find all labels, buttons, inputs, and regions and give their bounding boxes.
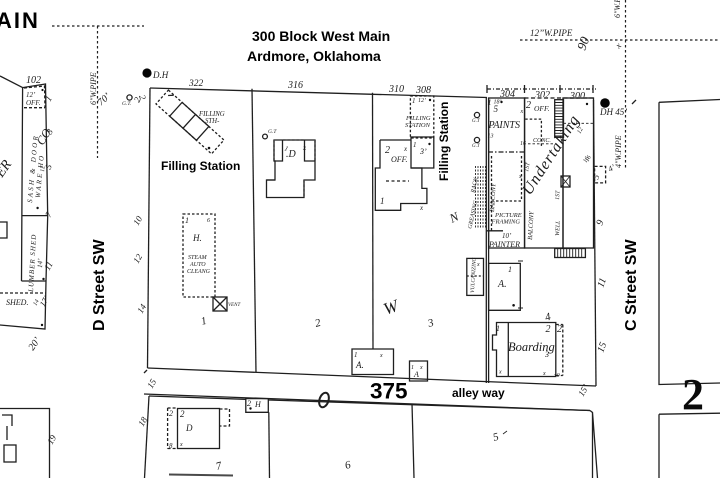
svg-text:A.: A. bbox=[355, 360, 364, 370]
svg-text:2: 2 bbox=[526, 100, 531, 111]
svg-text:1: 1 bbox=[488, 98, 492, 107]
svg-text:2: 2 bbox=[180, 409, 185, 419]
svg-text:x: x bbox=[542, 371, 546, 377]
svg-text:1: 1 bbox=[508, 265, 512, 274]
svg-text:STH-: STH- bbox=[205, 118, 220, 125]
svg-text:1: 1 bbox=[354, 351, 358, 359]
svg-text:1: 1 bbox=[380, 196, 385, 206]
svg-text:300 Block West Main: 300 Block West Main bbox=[252, 28, 390, 44]
svg-text:310: 310 bbox=[388, 84, 404, 95]
svg-text:H.: H. bbox=[192, 233, 202, 243]
svg-text:A.: A. bbox=[497, 279, 507, 290]
svg-text:STEAM: STEAM bbox=[188, 255, 208, 261]
svg-text:1: 1 bbox=[413, 141, 417, 149]
svg-text:2: 2 bbox=[682, 370, 704, 419]
svg-text:x: x bbox=[179, 442, 183, 448]
svg-text:6"W.P: 6"W.P bbox=[613, 0, 622, 18]
svg-text:.D: .D bbox=[286, 149, 297, 160]
svg-text:AUTO: AUTO bbox=[189, 262, 206, 268]
svg-text:322: 322 bbox=[188, 79, 204, 89]
svg-text:G.T: G.T bbox=[472, 119, 481, 124]
svg-text:1: 1 bbox=[496, 324, 500, 333]
svg-text:alley way: alley way bbox=[452, 386, 505, 400]
svg-text:x: x bbox=[419, 365, 423, 371]
svg-text:1: 1 bbox=[185, 216, 189, 225]
svg-text:WELL: WELL bbox=[555, 220, 562, 236]
svg-text:12’: 12’ bbox=[418, 98, 426, 104]
svg-text:102: 102 bbox=[26, 75, 41, 86]
svg-text:SHED.: SHED. bbox=[6, 298, 28, 307]
svg-text:VENT: VENT bbox=[228, 303, 241, 308]
svg-text:x: x bbox=[379, 353, 383, 359]
svg-text:300: 300 bbox=[569, 91, 585, 102]
svg-text:D.H: D.H bbox=[152, 70, 169, 80]
svg-text:OFF.: OFF. bbox=[26, 99, 41, 107]
svg-text:G.T: G.T bbox=[472, 144, 481, 149]
svg-text:5: 5 bbox=[494, 104, 499, 114]
svg-text:12’’W.PIPE: 12’’W.PIPE bbox=[530, 28, 573, 38]
svg-text:308: 308 bbox=[415, 85, 431, 96]
svg-text:Ardmore, Oklahoma: Ardmore, Oklahoma bbox=[247, 48, 381, 64]
svg-text:CLEANG: CLEANG bbox=[187, 269, 211, 275]
svg-text:D: D bbox=[185, 423, 193, 433]
svg-text:10’: 10’ bbox=[502, 232, 512, 240]
svg-text:12’: 12’ bbox=[26, 91, 36, 99]
svg-text:G.T.: G.T. bbox=[122, 101, 131, 107]
svg-text:Filling Station: Filling Station bbox=[161, 159, 240, 173]
svg-text:OFF.: OFF. bbox=[391, 155, 408, 164]
svg-text:2: 2 bbox=[546, 324, 551, 335]
svg-text:x: x bbox=[520, 109, 524, 115]
svg-text:PAINTER: PAINTER bbox=[488, 240, 520, 249]
svg-text:x: x bbox=[498, 370, 502, 376]
svg-text:OFF.: OFF. bbox=[534, 104, 550, 113]
svg-text:375: 375 bbox=[370, 379, 408, 404]
svg-text:A: A bbox=[413, 370, 419, 379]
svg-text:4"W.PIPE: 4"W.PIPE bbox=[614, 135, 623, 168]
svg-text:316: 316 bbox=[287, 80, 303, 91]
svg-text:2: 2 bbox=[169, 409, 173, 418]
svg-text:2: 2 bbox=[385, 145, 390, 156]
svg-text:6: 6 bbox=[207, 218, 210, 224]
svg-text:G.T: G.T bbox=[268, 129, 277, 135]
svg-text:FRAMING: FRAMING bbox=[491, 219, 521, 226]
svg-text:STATION: STATION bbox=[405, 122, 431, 129]
svg-text:2: 2 bbox=[247, 399, 251, 408]
svg-text:FILLING: FILLING bbox=[405, 115, 431, 122]
svg-text:PAINTS: PAINTS bbox=[488, 120, 521, 131]
svg-text:3: 3 bbox=[544, 350, 549, 359]
svg-text:1: 1 bbox=[412, 97, 416, 105]
svg-text:DH 45’: DH 45’ bbox=[599, 107, 627, 117]
svg-text:Filling Station: Filling Station bbox=[437, 102, 451, 181]
svg-text:1ST: 1ST bbox=[555, 190, 562, 200]
svg-text:3’: 3’ bbox=[419, 147, 427, 156]
svg-text:13: 13 bbox=[488, 134, 494, 140]
svg-text:FILLING: FILLING bbox=[198, 111, 225, 118]
svg-text:x0: x0 bbox=[553, 373, 560, 379]
svg-text:AIN: AIN bbox=[0, 8, 40, 33]
svg-text:x: x bbox=[518, 174, 522, 180]
svg-text:D Street SW: D Street SW bbox=[91, 239, 108, 331]
svg-text:C Street SW: C Street SW bbox=[623, 239, 640, 331]
svg-text:302: 302 bbox=[534, 90, 550, 101]
svg-text:2: 2 bbox=[557, 324, 562, 335]
svg-text:8: 8 bbox=[169, 442, 173, 450]
